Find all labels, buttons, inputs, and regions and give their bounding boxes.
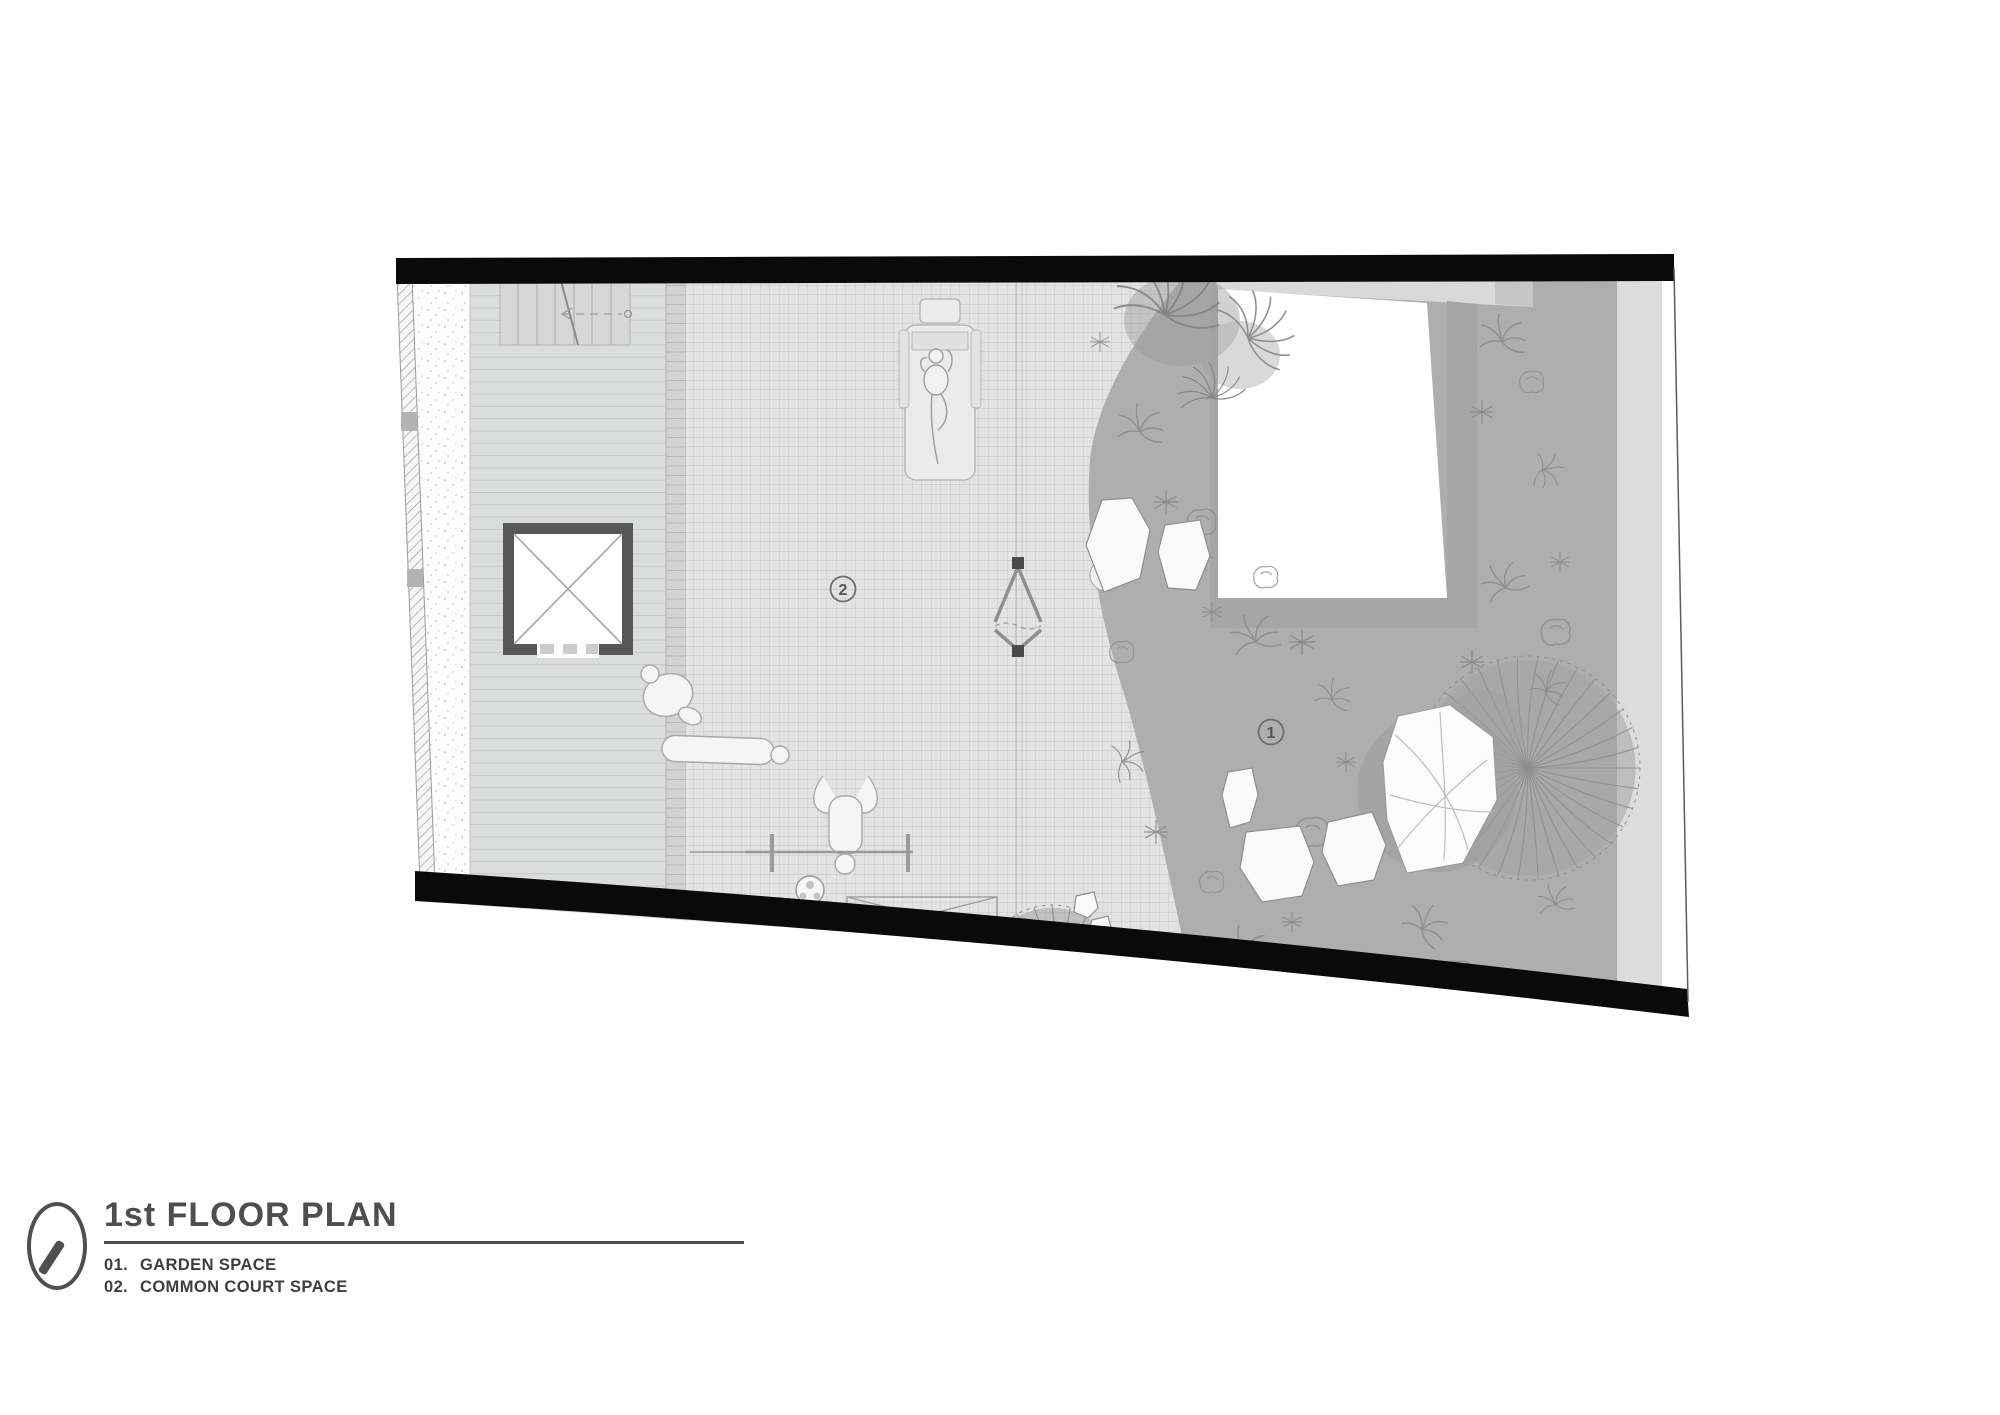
treadmill bbox=[899, 299, 981, 480]
title-rule bbox=[104, 1241, 744, 1244]
marker-court-number: 2 bbox=[839, 582, 848, 599]
north-wall bbox=[396, 254, 1674, 284]
compass-needle-icon bbox=[27, 1202, 87, 1290]
elevator-shaft bbox=[509, 529, 628, 659]
wall-opening-marker bbox=[401, 412, 417, 431]
legend-number: 02. bbox=[104, 1276, 140, 1298]
right-walk-strip bbox=[1617, 250, 1662, 1030]
title-block: 1st FLOOR PLAN 01. GARDEN SPACE 02. COMM… bbox=[27, 1196, 787, 1299]
legend-label: GARDEN SPACE bbox=[140, 1254, 277, 1276]
legend-label: COMMON COURT SPACE bbox=[140, 1276, 348, 1298]
floor-seam-band bbox=[666, 250, 686, 940]
page-title: 1st FLOOR PLAN bbox=[104, 1196, 787, 1232]
wall-opening-marker bbox=[407, 569, 423, 587]
legend-item-garden: 01. GARDEN SPACE bbox=[104, 1254, 787, 1276]
page: 2 1 1st FLOOR PLAN 01. GARDEN SPACE 02. … bbox=[0, 0, 2000, 1415]
legend-item-court: 02. COMMON COURT SPACE bbox=[104, 1276, 787, 1298]
legend-number: 01. bbox=[104, 1254, 140, 1276]
marker-garden-number: 1 bbox=[1267, 725, 1276, 742]
